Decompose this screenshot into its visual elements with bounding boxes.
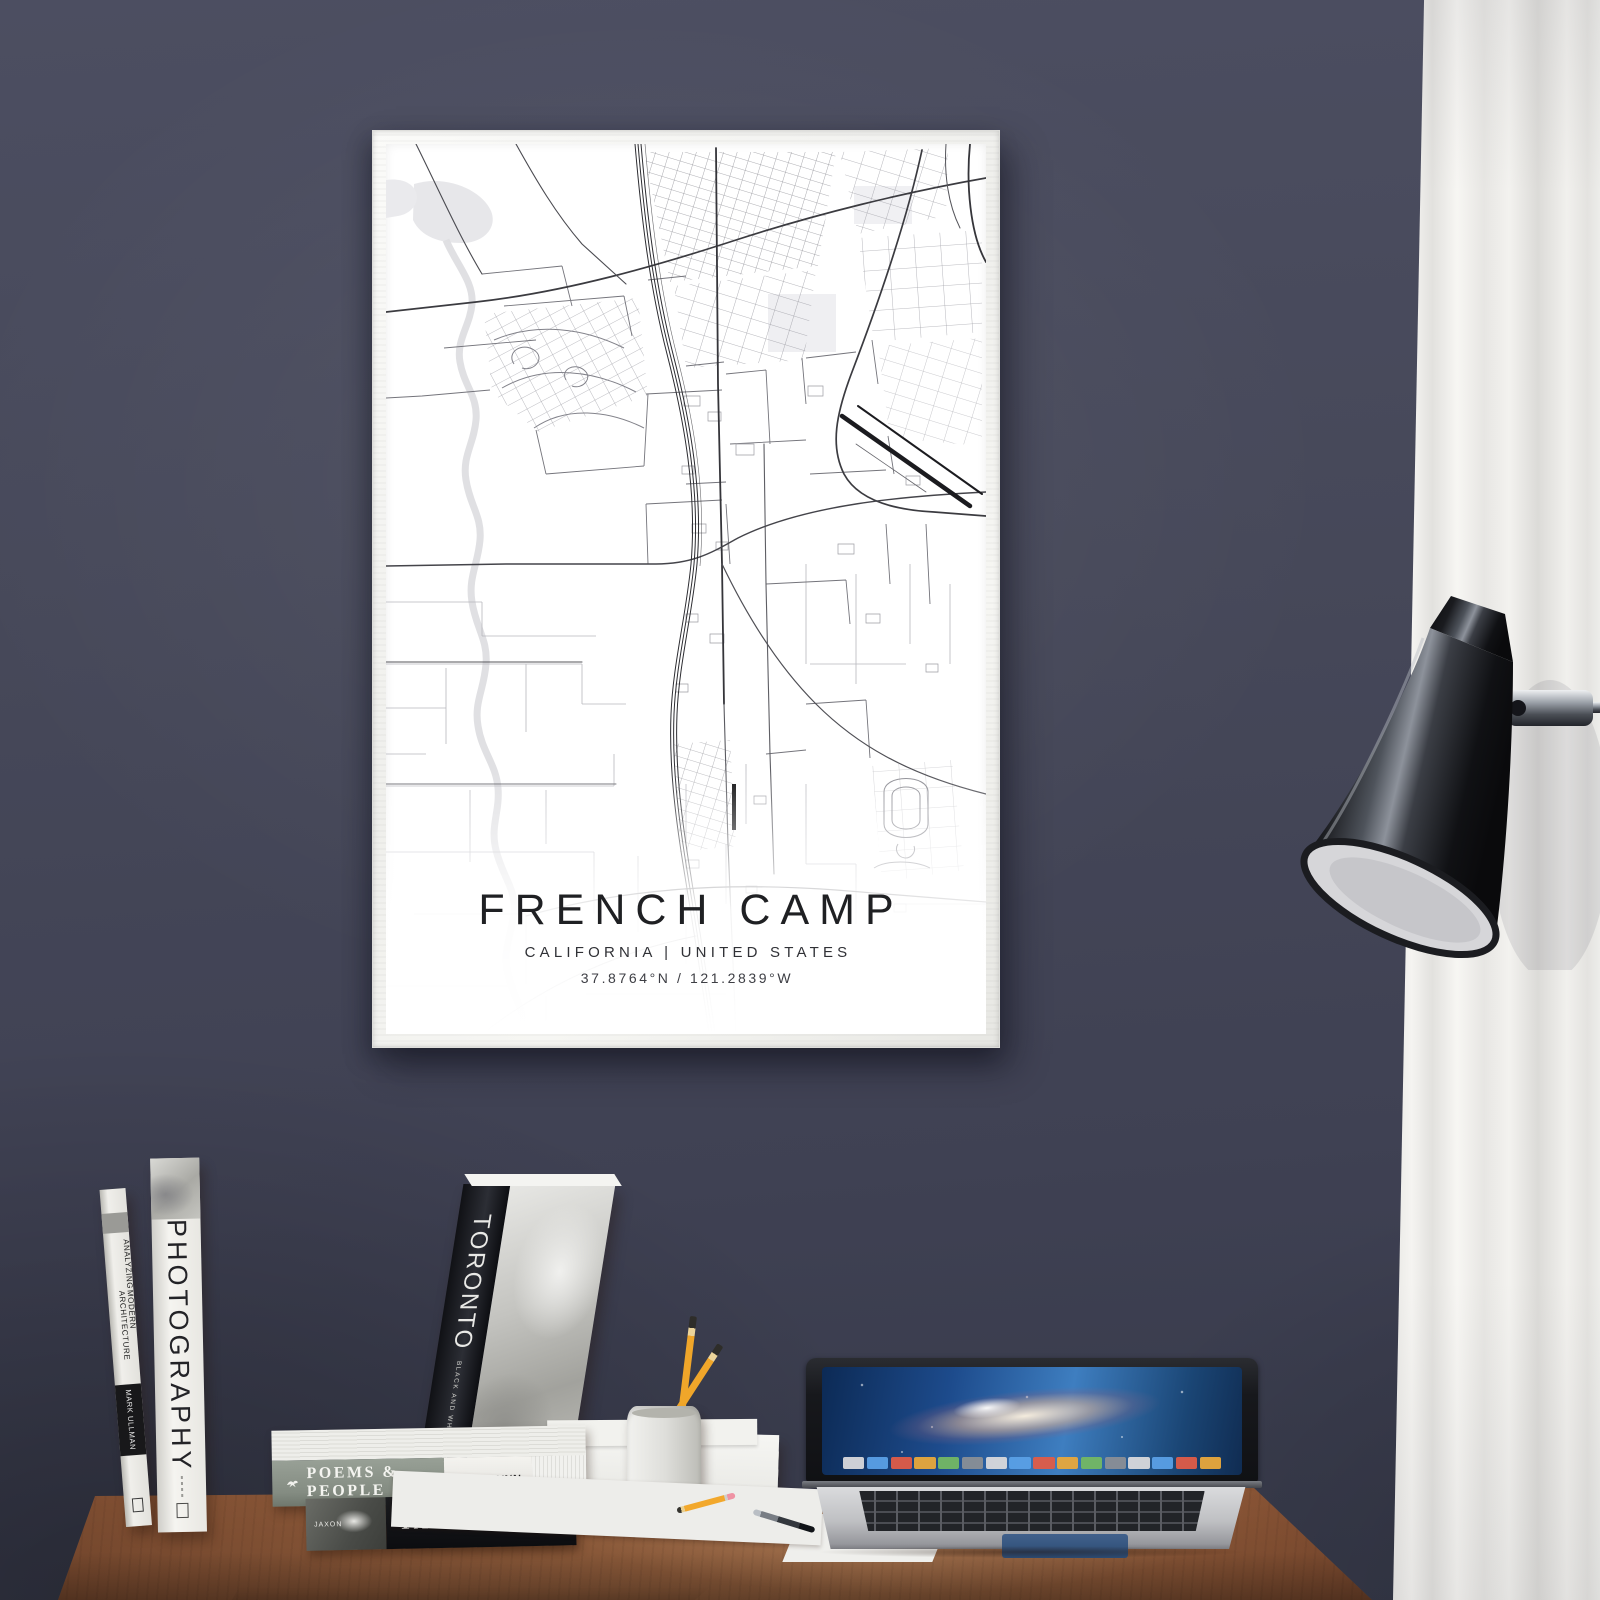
dock-icon xyxy=(938,1457,959,1469)
book-photography-cover-image xyxy=(150,1158,200,1220)
laptop-keyboard xyxy=(854,1491,1210,1531)
poster-frame: FRENCH CAMP CALIFORNIA | UNITED STATES 3… xyxy=(372,130,1000,1048)
laptop xyxy=(798,1350,1264,1555)
dock-icon xyxy=(1033,1457,1054,1469)
book-architecture-block xyxy=(101,1212,129,1234)
galaxy-wallpaper xyxy=(848,1367,1203,1467)
dock-icon xyxy=(1176,1457,1197,1469)
dock-icon xyxy=(986,1457,1007,1469)
book-architecture-author-band: MARK ULLMAN xyxy=(115,1383,146,1456)
dock-bar xyxy=(843,1454,1221,1469)
desk-lamp xyxy=(1255,590,1600,970)
bird-icon xyxy=(286,1476,299,1490)
dock-icon xyxy=(1057,1457,1078,1469)
laptop-hinge xyxy=(802,1481,1262,1488)
book-photography: PHOTOGRAPHY xyxy=(150,1158,207,1533)
book-photography-title: PHOTOGRAPHY xyxy=(160,1219,196,1473)
publisher-logo xyxy=(176,1503,188,1518)
dock-icon xyxy=(891,1457,912,1469)
dock-icon xyxy=(1105,1457,1126,1469)
dock-icon xyxy=(843,1457,864,1469)
publisher-logo xyxy=(132,1498,144,1513)
laptop-screen xyxy=(822,1367,1242,1475)
book-photography-small-print xyxy=(180,1473,183,1497)
dock-icon xyxy=(867,1457,888,1469)
dock-icon xyxy=(1081,1457,1102,1469)
map-poster: FRENCH CAMP CALIFORNIA | UNITED STATES 3… xyxy=(386,144,986,1034)
poster-coordinates: 37.8764°N / 121.2839°W xyxy=(386,970,986,986)
dock-icon xyxy=(914,1457,935,1469)
dock-icon xyxy=(1152,1457,1173,1469)
book-yacht-left-label: JAXON xyxy=(314,1521,342,1529)
book-toronto-pages xyxy=(464,1174,621,1186)
poster-subtitle: CALIFORNIA | UNITED STATES xyxy=(386,944,986,961)
dock-icon xyxy=(1128,1457,1149,1469)
poster-caption: FRENCH CAMP CALIFORNIA | UNITED STATES 3… xyxy=(386,888,986,986)
dock-icon xyxy=(962,1457,983,1469)
room-scene: FRENCH CAMP CALIFORNIA | UNITED STATES 3… xyxy=(0,0,1600,1600)
laptop-trackpad xyxy=(1002,1534,1128,1558)
laptop-lid xyxy=(806,1358,1258,1482)
poster-title: FRENCH CAMP xyxy=(386,888,986,933)
dock-icon xyxy=(1009,1457,1030,1469)
dock-icon xyxy=(1200,1457,1221,1469)
